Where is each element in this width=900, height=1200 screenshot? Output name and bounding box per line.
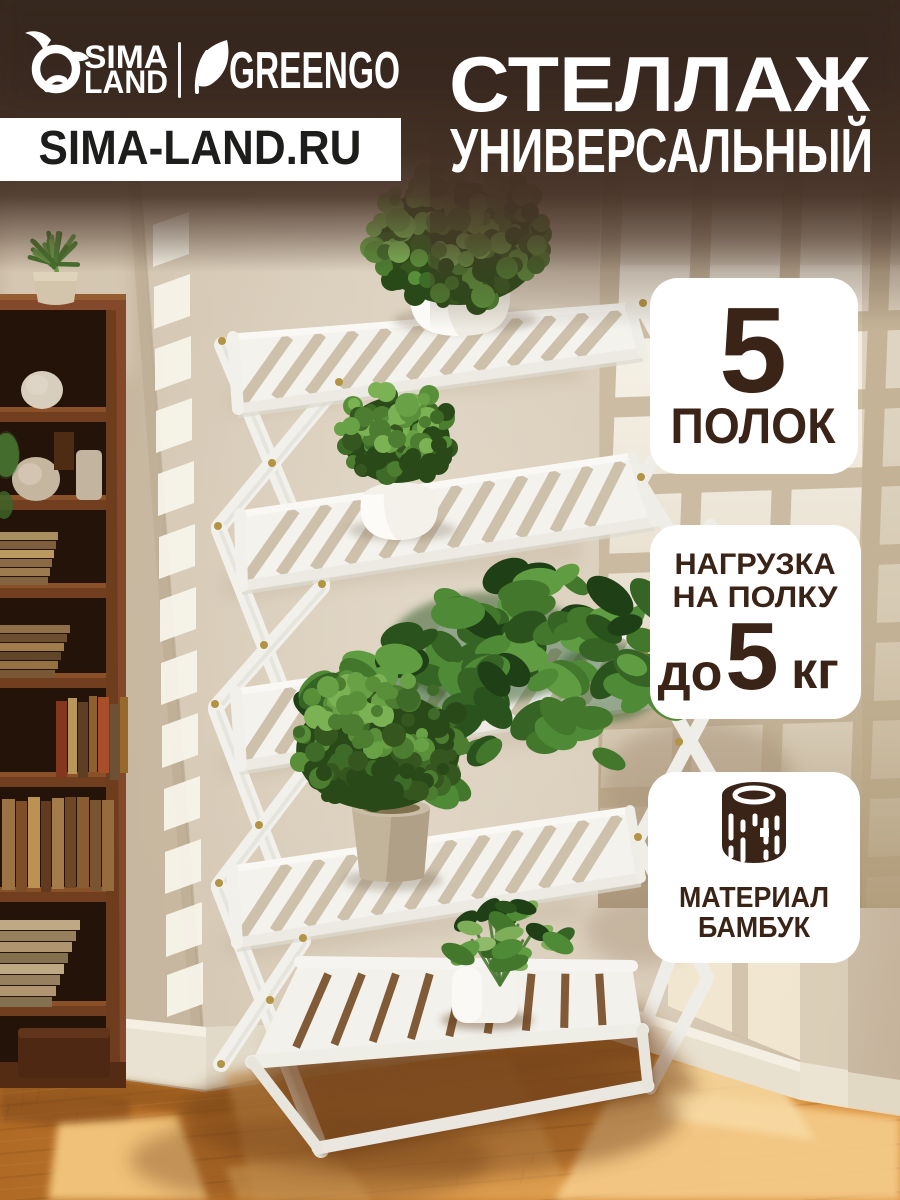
svg-text:SIMA-LAND.RU: SIMA-LAND.RU [39,122,362,175]
svg-text:НАГРУЗКА: НАГРУЗКА [675,548,836,581]
svg-text:БАМБУК: БАМБУК [698,912,810,944]
svg-text:5: 5 [725,603,778,710]
svg-text:кг: кг [791,642,839,700]
svg-text:LAND: LAND [84,64,168,100]
svg-text:УНИВЕРСАЛЬНЫЙ: УНИВЕРСАЛЬНЫЙ [450,116,873,186]
svg-text:ПОЛОК: ПОЛОК [671,398,836,454]
svg-text:GREENGO: GREENGO [229,42,400,100]
svg-text:до: до [658,644,723,702]
svg-text:МАТЕРИАЛ: МАТЕРИАЛ [679,882,829,914]
svg-text:СТЕЛЛАЖ: СТЕЛЛАЖ [449,40,871,128]
